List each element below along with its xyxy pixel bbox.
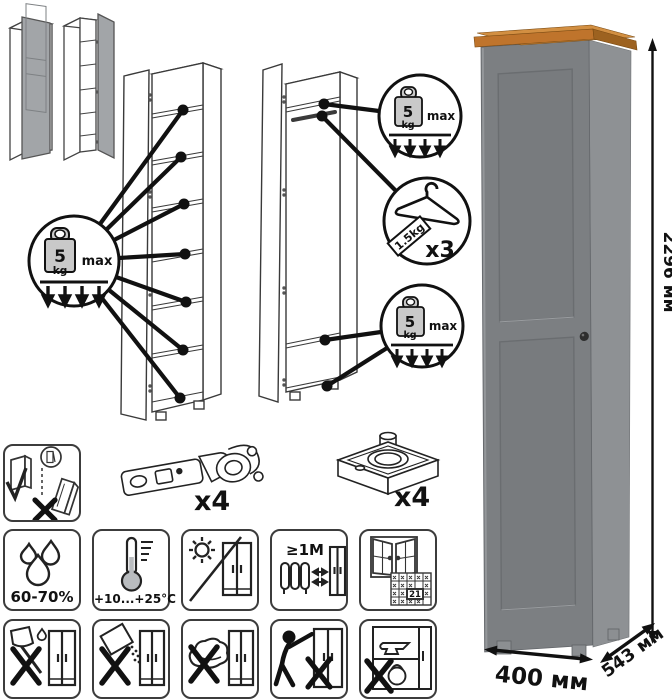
no-direct-sunlight (181, 529, 259, 611)
load-unit: kg (401, 120, 414, 131)
cabinet-glyph (229, 631, 253, 685)
acclimatization-days: 21 (409, 590, 421, 600)
load-value: 5 (403, 103, 413, 121)
foot-part: x4 (318, 426, 458, 512)
shelf-cabinet-drawing (121, 63, 221, 420)
tilted-cabinet (52, 479, 79, 515)
no-heavy-items-warning (359, 619, 437, 699)
sun-slash-icon (183, 531, 257, 609)
hinge-part: x4 (112, 430, 272, 518)
open-window-icon: 21 (361, 531, 435, 609)
small-cabinet-open (64, 14, 114, 160)
top-shelf-load-badge: 5 kg max (379, 75, 461, 157)
no-heavy-load-icon (361, 621, 435, 697)
open-door (259, 64, 282, 402)
wardrobe-render (474, 25, 637, 656)
radiator-distance-icon: ≥1M (272, 531, 346, 609)
cross-mark (102, 649, 128, 683)
hanger-load-badge: 1.5kg x3 (384, 178, 470, 264)
droplet-glyph (38, 629, 46, 640)
hinge-icon (112, 430, 272, 518)
no-sharp-tools-icon (5, 621, 79, 697)
adjustable-foot-icon (318, 426, 458, 512)
foot-quantity: x4 (394, 482, 430, 513)
shelf-load-max: max (82, 254, 113, 269)
hanger-quantity: x3 (425, 238, 455, 263)
distance-arrows (313, 569, 327, 585)
height-label: 2296 мм (659, 231, 672, 312)
load-max: max (427, 109, 456, 123)
humidity-requirement: 60-70% (3, 529, 81, 611)
ventilation-acclimatization: 21 (359, 529, 437, 611)
wardrobe-side-panel (589, 40, 631, 647)
no-sponge-icon (183, 621, 257, 697)
no-wet-sponge-warning (181, 619, 259, 699)
width-label: 400 мм (494, 662, 590, 697)
dimension-height: 2296 мм (648, 38, 672, 644)
calendar-grid: 21 (391, 573, 431, 605)
heat-source-distance: ≥1M (270, 529, 348, 611)
temperature-requirement: +10...+25°C (92, 529, 170, 611)
cabinet-glyph (140, 631, 164, 685)
door-upper-panel (498, 69, 573, 322)
no-hanging-icon (272, 621, 346, 697)
transport-upright-warning (3, 444, 81, 522)
gray-door-open (98, 14, 114, 158)
hanger-cabinet-drawing (259, 64, 357, 402)
transport-upright-icon (5, 446, 79, 520)
hinge-quantity: x4 (194, 486, 230, 517)
no-powder-icon (94, 621, 168, 697)
shelf-load-unit: kg (53, 265, 68, 277)
shelf-load-value: 5 (54, 247, 66, 267)
hinge-marks (282, 95, 285, 386)
load-unit: kg (403, 330, 416, 341)
small-cabinet-closed (10, 4, 52, 160)
no-hanging-on-door-warning (270, 619, 348, 699)
bottom-shelf-load-badge: 5 kg max (381, 285, 463, 367)
no-sharp-tools-warning (3, 619, 81, 699)
door-lower-panel (500, 337, 576, 610)
cabinet-glyph (330, 547, 345, 595)
radiator-glyph (281, 563, 309, 594)
open-door (121, 70, 149, 420)
wardrobe-door (481, 40, 593, 652)
load-max: max (429, 319, 458, 333)
humidity-label: 60-70% (5, 588, 79, 606)
no-abrasive-powder-warning (92, 619, 170, 699)
shelf-load-badge: 5 kg max (29, 216, 119, 306)
cabinet-glyph (49, 631, 75, 685)
temperature-label: +10...+25°C (94, 592, 168, 606)
load-value: 5 (405, 313, 415, 331)
min-distance-label: ≥1M (286, 541, 324, 559)
cabinet-glyph (223, 543, 251, 595)
